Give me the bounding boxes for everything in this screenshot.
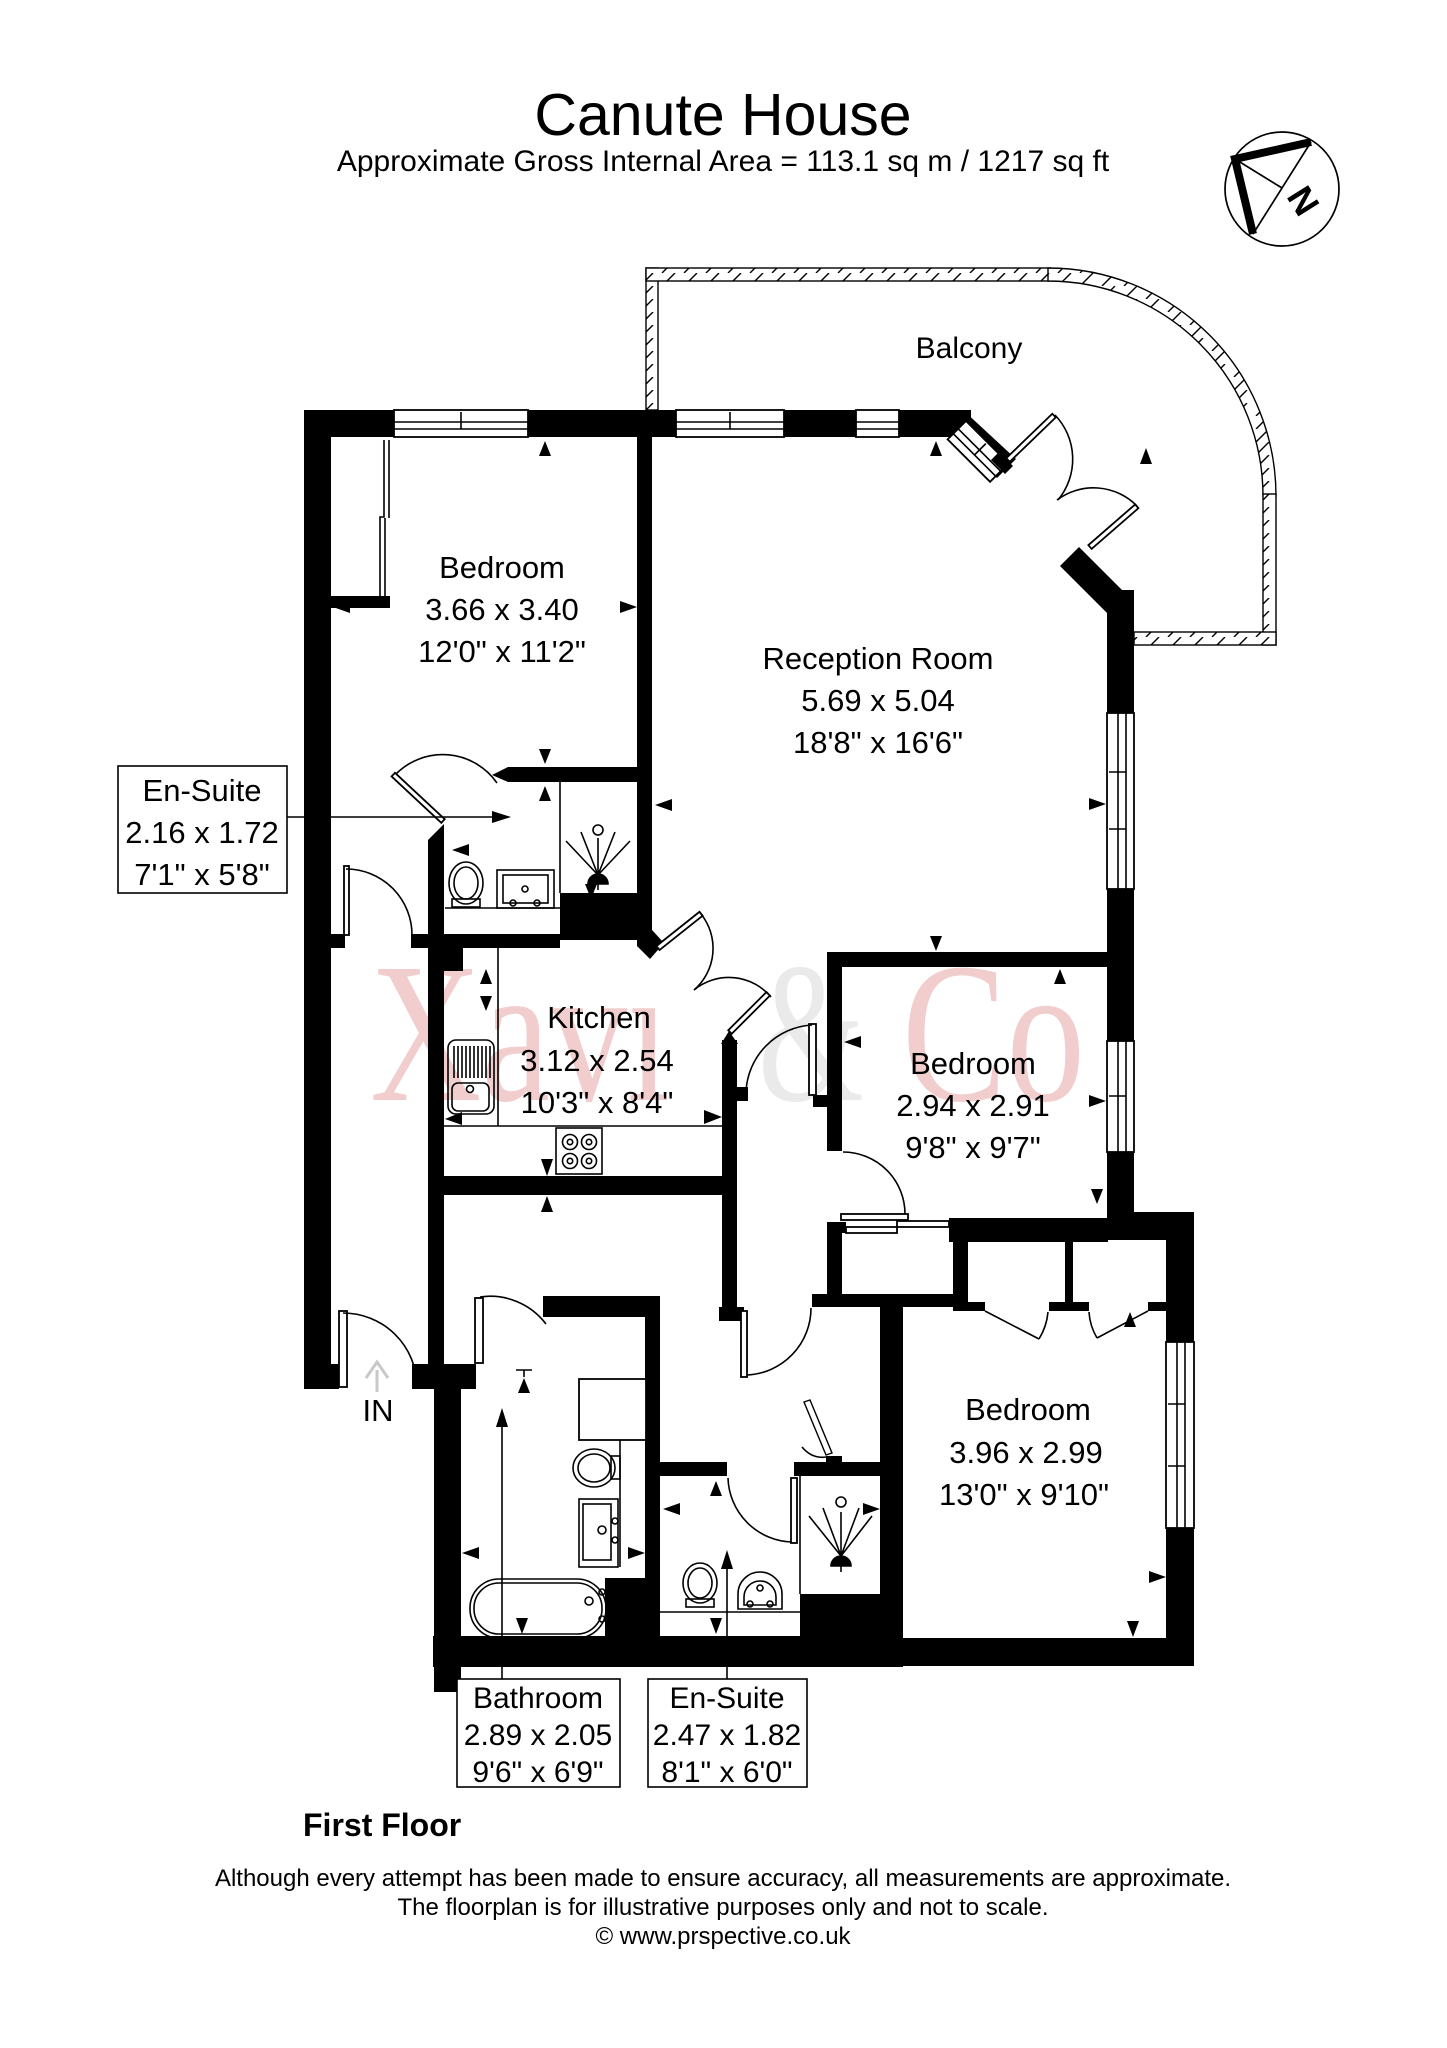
svg-text:IN: IN <box>363 1393 394 1428</box>
svg-text:2.47 x 1.82: 2.47 x 1.82 <box>653 1719 801 1752</box>
svg-text:2.94 x 2.91: 2.94 x 2.91 <box>896 1088 1049 1123</box>
svg-text:10'3" x 8'4": 10'3" x 8'4" <box>521 1085 674 1120</box>
svg-text:En-Suite: En-Suite <box>669 1682 784 1715</box>
svg-text:Bedroom: Bedroom <box>910 1046 1036 1081</box>
svg-text:18'8" x 16'6": 18'8" x 16'6" <box>793 725 963 760</box>
svg-text:Kitchen: Kitchen <box>547 1000 650 1035</box>
svg-text:Canute House: Canute House <box>534 82 911 148</box>
svg-text:3.96 x 2.99: 3.96 x 2.99 <box>949 1435 1102 1470</box>
svg-text:5.69 x 5.04: 5.69 x 5.04 <box>801 683 954 718</box>
svg-text:En-Suite: En-Suite <box>143 773 262 808</box>
svg-text:The floorplan is for illustrat: The floorplan is for illustrative purpos… <box>397 1894 1048 1921</box>
svg-text:13'0" x 9'10": 13'0" x 9'10" <box>939 1477 1109 1512</box>
svg-text:3.12 x 2.54: 3.12 x 2.54 <box>520 1043 673 1078</box>
svg-text:Although every attempt has bee: Although every attempt has been made to … <box>215 1865 1231 1892</box>
svg-text:Reception Room: Reception Room <box>763 641 994 676</box>
svg-text:3.66 x 3.40: 3.66 x 3.40 <box>425 592 578 627</box>
svg-text:2.89 x 2.05: 2.89 x 2.05 <box>464 1719 612 1752</box>
svg-text:8'1" x 6'0": 8'1" x 6'0" <box>661 1756 792 1789</box>
svg-text:9'8" x 9'7": 9'8" x 9'7" <box>905 1130 1041 1165</box>
svg-text:Bathroom: Bathroom <box>473 1682 603 1715</box>
svg-text:Approximate Gross Internal Are: Approximate Gross Internal Area = 113.1 … <box>337 145 1110 178</box>
svg-text:12'0" x 11'2": 12'0" x 11'2" <box>418 634 586 669</box>
svg-text:Bedroom: Bedroom <box>965 1392 1091 1427</box>
svg-text:© www.prspective.co.uk: © www.prspective.co.uk <box>595 1923 851 1950</box>
svg-text:7'1" x 5'8": 7'1" x 5'8" <box>134 857 270 892</box>
svg-text:First Floor: First Floor <box>303 1807 461 1843</box>
svg-text:9'6" x 6'9": 9'6" x 6'9" <box>472 1756 603 1789</box>
svg-text:2.16 x 1.72: 2.16 x 1.72 <box>125 815 278 850</box>
svg-text:Bedroom: Bedroom <box>439 550 565 585</box>
svg-text:Balcony: Balcony <box>916 332 1023 365</box>
